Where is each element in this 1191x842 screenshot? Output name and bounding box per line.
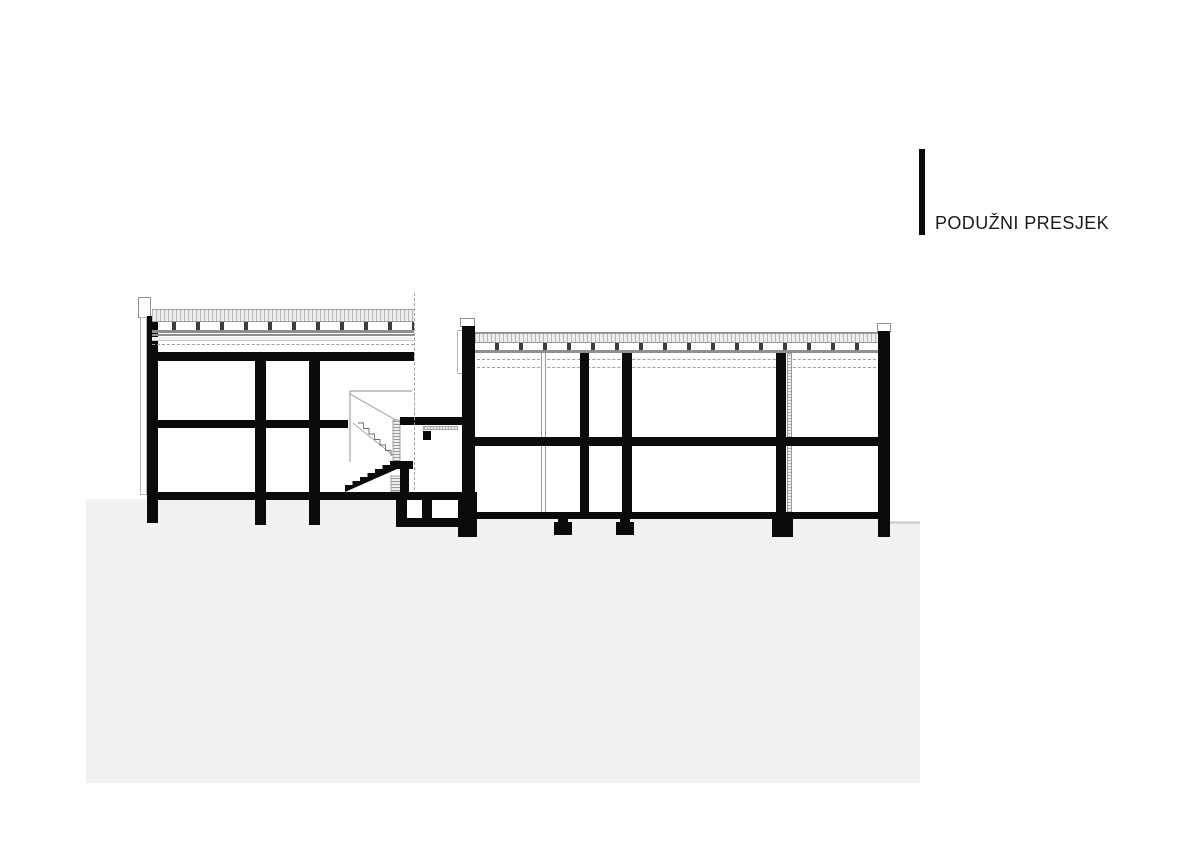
axis-dash-line [414, 293, 415, 490]
left-roof-slab [147, 352, 414, 361]
left-ceiling-dash-line [152, 344, 414, 345]
basement-foundation-stub [458, 527, 477, 537]
right-wing-west-wall [462, 326, 475, 492]
suspended-ceiling-dash-1 [477, 359, 876, 360]
right-ground-floor-slab [475, 512, 878, 519]
right-column-b [622, 353, 632, 513]
shaft-hatch-strip [787, 353, 792, 513]
link-door-head-stub [423, 431, 431, 440]
right-roof-insulation-hatch [475, 333, 878, 343]
ground-mass-left [86, 499, 477, 783]
left-facade-liner [140, 317, 147, 495]
basement-room-a [407, 500, 422, 518]
left-mid-floor-slab [147, 420, 348, 428]
left-roof-insulation-hatch [152, 309, 414, 322]
drawing-title: PODUŽNI PRESJEK [935, 213, 1109, 234]
ground-mass-east [888, 521, 920, 783]
left-column-a [255, 361, 266, 525]
stair-balustrade-hatch [393, 420, 400, 464]
drawing-sheet: PODUŽNI PRESJEK [0, 0, 1191, 842]
right-mid-floor-slab [475, 437, 878, 446]
left-roof-deck-band [152, 337, 414, 341]
upper-flight-steps [358, 423, 391, 456]
basement-room-b [432, 500, 458, 518]
suspended-ceiling-dash-2 [477, 367, 876, 368]
foundation-pad-3 [772, 519, 793, 537]
right-wing-east-wall [878, 331, 890, 537]
left-parapet-cap [138, 297, 151, 318]
foundation-pad-1 [554, 522, 572, 535]
link-bridge-slab [400, 417, 462, 425]
right-column-a [580, 353, 589, 513]
right-roof-anchor-row [475, 343, 878, 353]
foundation-pad-2 [616, 522, 634, 535]
left-roof-anchor-row [152, 322, 414, 333]
left-roof-membrane-line [152, 334, 414, 336]
left-column-b [309, 361, 320, 525]
right-column-c [776, 353, 786, 513]
ground-mass-right [477, 516, 888, 783]
link-ceiling-hatch [423, 426, 458, 430]
glass-partition-mullion [541, 353, 546, 513]
title-accent-bar [919, 149, 925, 235]
